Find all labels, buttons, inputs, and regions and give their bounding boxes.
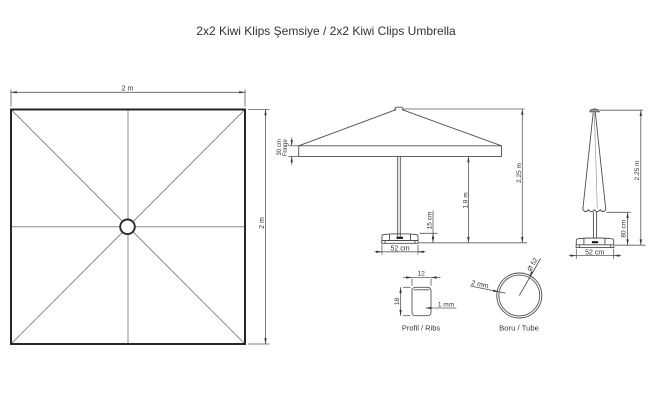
svg-text:Ø 52: Ø 52 xyxy=(526,257,539,273)
svg-text:52 cm: 52 cm xyxy=(390,245,409,252)
svg-text:2.25 m: 2.25 m xyxy=(516,163,523,183)
svg-text:Fringe: Fringe xyxy=(283,139,289,157)
svg-text:2.25 m: 2.25 m xyxy=(634,161,641,181)
svg-text:Profil / Ribs: Profil / Ribs xyxy=(402,324,441,333)
svg-text:15 cm: 15 cm xyxy=(426,212,433,230)
svg-text:12: 12 xyxy=(418,271,426,278)
svg-text:2 mm: 2 mm xyxy=(471,280,490,290)
svg-text:18: 18 xyxy=(394,298,401,306)
svg-text:80 cm: 80 cm xyxy=(620,220,627,238)
svg-text:2 m: 2 m xyxy=(259,217,266,229)
svg-text:1 mm: 1 mm xyxy=(438,301,454,308)
svg-text:2x2 Kiwi Klips Şemsiye / 2x2 K: 2x2 Kiwi Klips Şemsiye / 2x2 Kiwi Clips … xyxy=(196,24,456,38)
svg-text:52 cm: 52 cm xyxy=(585,249,604,256)
svg-text:Boru / Tube: Boru / Tube xyxy=(499,324,539,333)
svg-text:2 m: 2 m xyxy=(122,85,134,92)
svg-text:1.8 m: 1.8 m xyxy=(463,192,470,208)
